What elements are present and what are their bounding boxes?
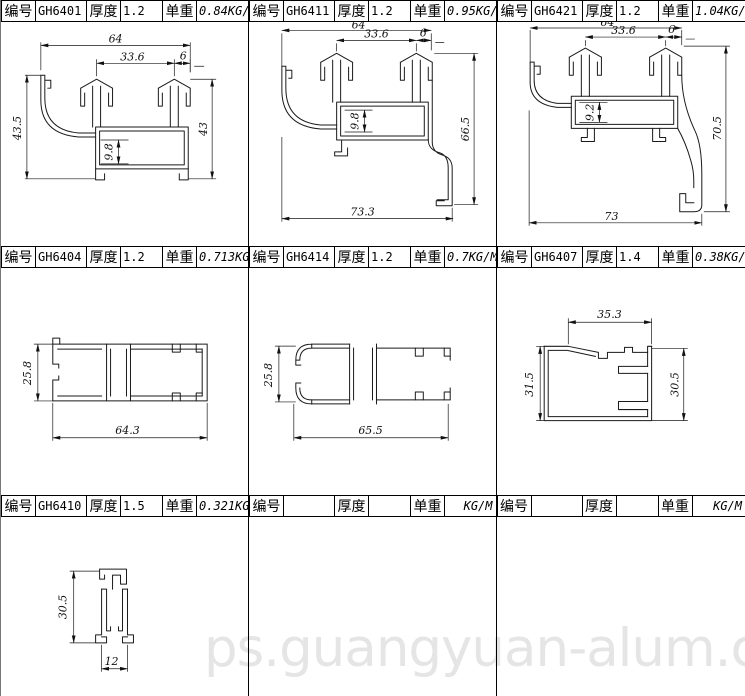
- weight-unit: KG/M: [235, 247, 248, 267]
- weight-value: 0.713KG/M: [197, 247, 248, 267]
- weight-unit: KG/M: [713, 496, 742, 516]
- thickness-value: 1.2: [617, 1, 658, 21]
- weight-value: KG/M: [445, 496, 496, 516]
- profile-outline: [544, 346, 651, 420]
- dim-label: 6: [420, 26, 427, 39]
- dim-label: 33.6: [364, 27, 388, 40]
- dimension-labels: 35.3 31.5 30.5: [523, 308, 682, 397]
- profile-code: GH6414: [284, 247, 334, 267]
- drawing-gh6407: 35.3 31.5 30.5: [497, 268, 745, 496]
- dim-label: 25.8: [21, 361, 34, 386]
- weight-value: 0.38KG/M: [693, 247, 745, 267]
- weight-number: 0.321: [199, 496, 235, 516]
- weight-label: 单重: [162, 247, 197, 267]
- thickness-value: 1.2: [121, 247, 162, 267]
- drawing-gh6411: 64 33.6 6 9.8 66.5 73.3: [249, 22, 496, 246]
- thickness-label: 厚度: [582, 1, 617, 21]
- profile-drawing-gh6401: 64 33.6 6 43.5 43 9.8: [1, 22, 248, 246]
- thickness-label: 厚度: [334, 1, 369, 21]
- thickness-value: [617, 496, 658, 516]
- dim-label: 6: [668, 23, 675, 36]
- weight-number: 0.84: [199, 1, 228, 21]
- row-3: 编号 GH6410 厚度 1.5 单重 0.321KG/M: [1, 495, 745, 696]
- profile-code: GH6411: [284, 1, 334, 21]
- dim-label: 43.5: [11, 116, 24, 141]
- thickness-value: 1.2: [369, 247, 410, 267]
- weight-label: 单重: [410, 1, 445, 21]
- profile-code: GH6404: [36, 247, 86, 267]
- dimension-labels: 64 33.6 6 9.8 66.5 73.3: [349, 22, 473, 219]
- code-label: 编号: [1, 247, 36, 267]
- weight-unit: KG/M: [469, 247, 496, 267]
- row-2: 编号 GH6404 厚度 1.2 单重 0.713KG/M: [1, 246, 745, 495]
- profile-code: GH6407: [532, 247, 582, 267]
- dimension-lines: [529, 28, 730, 226]
- dim-label: 73: [604, 210, 618, 223]
- profile-drawing-gh6411: 64 33.6 6 9.8 66.5 73.3: [249, 22, 496, 246]
- profile-drawing-gh6404: 25.8 64.3: [1, 268, 248, 495]
- profile-outline: [296, 344, 450, 404]
- weight-label: 单重: [658, 1, 693, 21]
- dim-label: 30.5: [669, 372, 682, 397]
- dimension-lines: [70, 571, 128, 672]
- spec-header: 编号 GH6407 厚度 1.4 单重 0.38KG/M: [497, 246, 745, 268]
- weight-unit: KG/M: [235, 496, 248, 516]
- drawing-empty: [249, 517, 496, 696]
- profile-code: GH6401: [36, 1, 86, 21]
- dim-label: 6: [180, 49, 187, 62]
- thickness-value: 1.2: [369, 1, 410, 21]
- thickness-label: 厚度: [86, 247, 121, 267]
- drawing-gh6410: 30.5 12: [1, 517, 248, 696]
- profile-drawing-gh6410: 30.5 12: [1, 517, 248, 696]
- code-label: 编号: [1, 1, 36, 21]
- dim-label: 64.3: [115, 424, 139, 437]
- cell-gh6410: 编号 GH6410 厚度 1.5 单重 0.321KG/M: [1, 495, 249, 696]
- code-label: 编号: [249, 496, 284, 516]
- weight-label: 单重: [410, 496, 445, 516]
- cell-gh6404: 编号 GH6404 厚度 1.2 单重 0.713KG/M: [1, 246, 249, 495]
- drawing-empty: [497, 517, 745, 696]
- dim-label: 12: [105, 655, 119, 668]
- row-1: 编号 GH6401 厚度 1.2 单重 0.84KG/M: [1, 0, 745, 246]
- thickness-value: 1.5: [121, 496, 162, 516]
- weight-unit: KG/M: [464, 496, 493, 516]
- code-label: 编号: [249, 1, 284, 21]
- profile-code: GH6410: [36, 496, 86, 516]
- weight-label: 单重: [658, 496, 693, 516]
- weight-label: 单重: [162, 496, 197, 516]
- weight-number: 0.7: [447, 247, 469, 267]
- dim-label: 43: [197, 122, 210, 137]
- cell-gh6401: 编号 GH6401 厚度 1.2 单重 0.84KG/M: [1, 0, 249, 246]
- cell-empty-2: 编号 厚度 单重 KG/M: [497, 495, 745, 696]
- thickness-value: [369, 496, 410, 516]
- weight-value: KG/M: [693, 496, 745, 516]
- drawing-gh6404: 25.8 64.3: [1, 268, 248, 495]
- weight-value: 0.95KG/M: [445, 1, 496, 21]
- profile-outline: [53, 338, 207, 401]
- drawing-gh6421: 64 33.6 6 9.2 70.5 73: [497, 22, 745, 247]
- thickness-label: 厚度: [334, 496, 369, 516]
- dimension-labels: 25.8 64.3: [21, 361, 140, 437]
- dim-label: 65.5: [358, 424, 382, 437]
- weight-label: 单重: [410, 247, 445, 267]
- dim-label: 35.3: [597, 308, 622, 321]
- code-label: 编号: [497, 496, 532, 516]
- weight-unit: KG/M: [228, 1, 248, 21]
- cell-gh6414: 编号 GH6414 厚度 1.2 单重 0.7KG/M: [249, 246, 497, 495]
- code-label: 编号: [497, 247, 532, 267]
- code-label: 编号: [1, 496, 36, 516]
- weight-number: 0.95: [447, 1, 476, 21]
- profile-outline: [530, 48, 702, 212]
- spec-header: 编号 GH6414 厚度 1.2 单重 0.7KG/M: [249, 246, 496, 268]
- profile-outline: [96, 569, 134, 643]
- spec-header: 编号 厚度 单重 KG/M: [497, 495, 745, 517]
- dim-label: 9.2: [583, 104, 596, 122]
- weight-unit: KG/M: [476, 1, 496, 21]
- dim-label: 31.5: [523, 372, 536, 397]
- spec-header: 编号 GH6401 厚度 1.2 单重 0.84KG/M: [1, 0, 248, 22]
- drawing-gh6401: 64 33.6 6 43.5 43 9.8: [1, 22, 248, 246]
- cell-gh6411: 编号 GH6411 厚度 1.2 单重 0.95KG/M: [249, 0, 497, 246]
- dim-label: 64: [109, 32, 123, 45]
- thickness-label: 厚度: [582, 496, 617, 516]
- cell-empty-1: 编号 厚度 单重 KG/M: [249, 495, 497, 696]
- weight-number: 1.04: [695, 1, 724, 21]
- weight-unit: KG/M: [724, 1, 745, 21]
- thickness-label: 厚度: [334, 247, 369, 267]
- weight-number: 0.713: [199, 247, 235, 267]
- cell-gh6407: 编号 GH6407 厚度 1.4 单重 0.38KG/M: [497, 246, 745, 495]
- profile-drawing-gh6414: 25.8 65.5: [249, 268, 496, 495]
- dim-label: 9.8: [349, 112, 362, 129]
- dim-label: 33.6: [120, 50, 144, 63]
- thickness-label: 厚度: [86, 1, 121, 21]
- code-label: 编号: [497, 1, 532, 21]
- weight-value: 1.04KG/M: [693, 1, 745, 21]
- spec-header: 编号 GH6404 厚度 1.2 单重 0.713KG/M: [1, 246, 248, 268]
- thickness-value: 1.2: [121, 1, 162, 21]
- weight-value: 0.84KG/M: [197, 1, 248, 21]
- weight-value: 0.321KG/M: [197, 496, 248, 516]
- drawing-gh6414: 25.8 65.5: [249, 268, 496, 495]
- dimension-lines: [536, 318, 688, 420]
- weight-label: 单重: [658, 247, 693, 267]
- profile-code: [532, 496, 582, 516]
- profile-outline: [282, 53, 452, 205]
- weight-unit: KG/M: [724, 247, 745, 267]
- spec-header: 编号 GH6410 厚度 1.5 单重 0.321KG/M: [1, 495, 248, 517]
- dim-label: 33.6: [611, 24, 636, 37]
- profile-catalog-sheet: ps.guangyuan-alum.com 编号 GH6401 厚度 1.2 单…: [0, 0, 745, 696]
- dim-label: 25.8: [262, 363, 275, 388]
- profile-code: GH6421: [532, 1, 582, 21]
- code-label: 编号: [249, 247, 284, 267]
- profile-drawing-gh6407: 35.3 31.5 30.5: [497, 268, 745, 496]
- weight-label: 单重: [162, 1, 197, 21]
- profile-drawing-gh6421: 64 33.6 6 9.2 70.5 73: [497, 22, 745, 247]
- spec-header: 编号 厚度 单重 KG/M: [249, 495, 496, 517]
- thickness-label: 厚度: [86, 496, 121, 516]
- weight-value: 0.7KG/M: [445, 247, 496, 267]
- dim-label: 9.8: [103, 143, 116, 160]
- dim-label: 30.5: [57, 595, 70, 619]
- profile-code: [284, 496, 334, 516]
- spec-header: 编号 GH6411 厚度 1.2 单重 0.95KG/M: [249, 0, 496, 22]
- dim-label: 70.5: [711, 116, 724, 141]
- thickness-value: 1.4: [617, 247, 658, 267]
- dim-label: 66.5: [459, 117, 472, 141]
- dim-label: 73.3: [350, 206, 374, 219]
- spec-header: 编号 GH6421 厚度 1.2 单重 1.04KG/M: [497, 0, 745, 22]
- thickness-label: 厚度: [582, 247, 617, 267]
- cell-gh6421: 编号 GH6421 厚度 1.2 单重 1.04KG/M: [497, 0, 745, 246]
- weight-number: 0.38: [695, 247, 724, 267]
